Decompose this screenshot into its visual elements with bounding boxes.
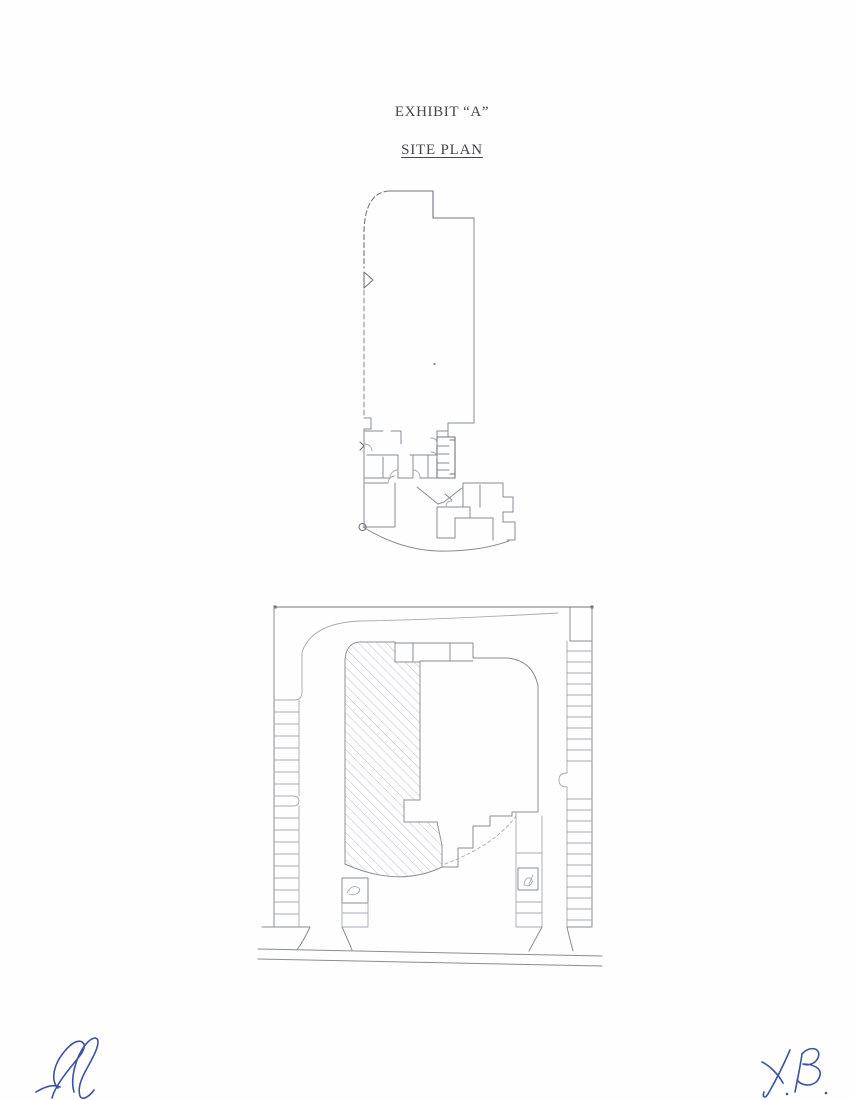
curb-jog — [559, 773, 567, 787]
entry-vestibules — [413, 643, 473, 661]
signature-initials-right — [762, 1049, 827, 1097]
site-plan-drawing — [258, 606, 602, 967]
floor-plan-top-notch — [433, 191, 474, 218]
street-lines — [258, 949, 602, 966]
angled-corridor-walls — [417, 487, 462, 504]
right-island — [516, 812, 542, 927]
north-arrow-marker — [364, 272, 373, 288]
sign-box — [342, 878, 368, 903]
accessible-parking-symbol — [524, 875, 533, 886]
plan-drawings — [0, 0, 850, 1100]
hatched-premises-area — [345, 642, 442, 877]
curb-jog — [274, 796, 299, 806]
interior-column-dot — [434, 363, 436, 365]
curved-bottom-wall — [363, 527, 509, 551]
corner-structure — [570, 607, 592, 641]
curb-return — [529, 927, 542, 951]
door-arc — [413, 470, 420, 477]
curb-return — [567, 927, 573, 951]
floor-plan-drawing — [359, 191, 515, 551]
door-arc — [388, 476, 395, 483]
bottom-rooms — [437, 501, 493, 540]
curb-return — [342, 927, 352, 950]
sign-symbol — [347, 887, 360, 895]
office-rooms — [365, 444, 437, 478]
left-parking-stalls — [274, 700, 299, 927]
signature-initials-left — [36, 1038, 98, 1098]
driveway-entrances — [262, 927, 592, 951]
floor-plan-curved-corner — [364, 191, 389, 268]
parking-stall-lines — [274, 818, 299, 914]
door-arc — [365, 444, 372, 451]
curb-return — [297, 927, 310, 950]
right-parking-stalls — [559, 641, 592, 927]
parking-stall-lines — [567, 651, 592, 761]
document-page: EXHIBIT “A” SITE PLAN — [0, 0, 850, 1100]
accessible-parking-box — [518, 868, 538, 890]
parking-stall-lines — [567, 799, 592, 920]
parking-stall-lines — [274, 712, 299, 784]
left-island — [342, 878, 368, 927]
drive-lane-dashed-curve — [445, 816, 516, 864]
door-arc — [446, 501, 452, 507]
right-rooms — [463, 483, 515, 540]
